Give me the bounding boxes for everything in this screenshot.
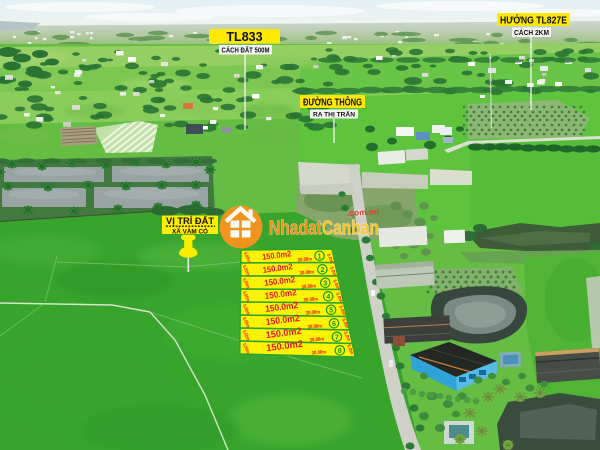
svg-text:30.00m: 30.00m bbox=[309, 336, 324, 343]
svg-text:4: 4 bbox=[326, 292, 330, 301]
svg-text:HƯỚNG TL827E: HƯỚNG TL827E bbox=[500, 14, 567, 27]
svg-text:ĐƯỜNG THÔNG: ĐƯỜNG THÔNG bbox=[303, 96, 362, 109]
svg-text:TL833: TL833 bbox=[226, 30, 262, 44]
svg-text:CÁCH 2KM: CÁCH 2KM bbox=[514, 28, 549, 37]
svg-text:30.00m: 30.00m bbox=[307, 323, 322, 330]
svg-text:8: 8 bbox=[338, 346, 342, 355]
svg-text:30.00m: 30.00m bbox=[299, 269, 314, 276]
svg-text:6: 6 bbox=[332, 319, 336, 328]
svg-text:XÃ VÀM CỎ: XÃ VÀM CỎ bbox=[172, 228, 208, 235]
svg-text:.com.vn: .com.vn bbox=[347, 206, 380, 218]
svg-text:30.00m: 30.00m bbox=[311, 349, 326, 356]
svg-text:NhadatCanban: NhadatCanban bbox=[269, 218, 379, 240]
svg-text:5: 5 bbox=[329, 305, 333, 314]
svg-text:30.00m: 30.00m bbox=[303, 296, 318, 303]
svg-text:7: 7 bbox=[335, 332, 339, 341]
svg-text:1: 1 bbox=[318, 251, 322, 260]
svg-text:30.00m: 30.00m bbox=[297, 256, 312, 263]
svg-text:30.00m: 30.00m bbox=[301, 283, 316, 290]
svg-text:VỊ TRÍ ĐẤT: VỊ TRÍ ĐẤT bbox=[166, 216, 215, 226]
svg-text:30.00m: 30.00m bbox=[305, 309, 320, 316]
svg-text:3: 3 bbox=[323, 278, 327, 287]
svg-text:2: 2 bbox=[320, 265, 324, 274]
